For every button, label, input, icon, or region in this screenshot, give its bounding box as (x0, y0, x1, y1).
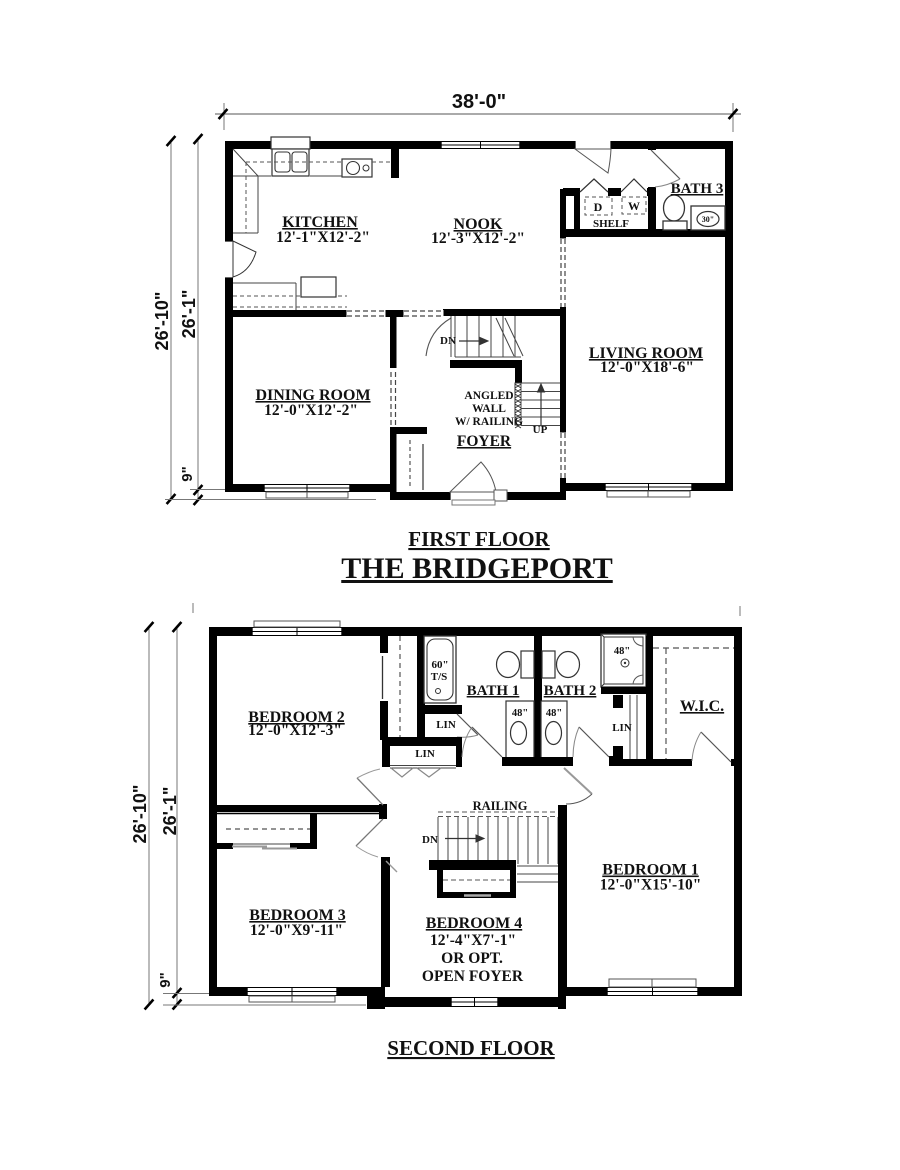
svg-text:60": 60" (431, 659, 448, 671)
svg-text:9": 9" (179, 466, 196, 481)
svg-text:D: D (594, 200, 603, 214)
svg-text:48": 48" (512, 708, 528, 719)
svg-text:T/S: T/S (431, 671, 448, 683)
svg-text:38'-0": 38'-0" (452, 91, 506, 113)
svg-text:30": 30" (702, 215, 714, 224)
svg-text:W.I.C.: W.I.C. (680, 698, 724, 715)
svg-text:12'-1"X12'-2": 12'-1"X12'-2" (276, 229, 370, 246)
svg-text:ANGLED: ANGLED (464, 390, 513, 402)
svg-text:SHELF: SHELF (593, 218, 629, 230)
svg-text:OPEN FOYER: OPEN FOYER (422, 968, 524, 985)
svg-text:OR OPT.: OR OPT. (441, 950, 503, 967)
svg-text:12'-0"X15'-10": 12'-0"X15'-10" (600, 877, 702, 894)
svg-text:26'-10": 26'-10" (130, 785, 150, 844)
svg-text:LIN: LIN (612, 722, 632, 734)
svg-text:12'-0"X9'-11": 12'-0"X9'-11" (250, 922, 343, 939)
svg-text:UP: UP (533, 424, 548, 436)
svg-text:W/ RAILING: W/ RAILING (455, 416, 523, 428)
svg-text:26'-1": 26'-1" (160, 787, 180, 836)
svg-text:BATH 2: BATH 2 (544, 683, 597, 699)
svg-text:26'-10": 26'-10" (152, 292, 172, 351)
svg-text:FIRST FLOOR: FIRST FLOOR (408, 527, 550, 551)
svg-text:9": 9" (157, 972, 174, 987)
svg-text:WALL: WALL (472, 403, 506, 415)
svg-text:FOYER: FOYER (457, 433, 512, 450)
svg-text:48": 48" (614, 646, 630, 657)
svg-text:W: W (628, 199, 640, 213)
svg-text:BEDROOM 4: BEDROOM 4 (426, 915, 522, 932)
svg-text:LIN: LIN (415, 748, 435, 760)
svg-text:BATH 3: BATH 3 (671, 181, 724, 197)
svg-text:LIN: LIN (436, 719, 456, 731)
svg-text:12'-0"X12'-2": 12'-0"X12'-2" (264, 402, 358, 419)
svg-text:26'-1": 26'-1" (179, 290, 199, 339)
svg-text:DN: DN (422, 834, 438, 846)
svg-text:DN: DN (440, 335, 456, 347)
svg-text:12'-0"X12'-3": 12'-0"X12'-3" (248, 722, 342, 739)
svg-text:12'-0"X18'-6": 12'-0"X18'-6" (600, 359, 694, 376)
svg-text:RAILING: RAILING (473, 799, 528, 813)
svg-text:THE BRIDGEPORT: THE BRIDGEPORT (341, 552, 613, 585)
svg-text:12'-3"X12'-2": 12'-3"X12'-2" (431, 230, 525, 247)
svg-text:BATH 1: BATH 1 (467, 683, 520, 699)
svg-text:12'-4"X7'-1": 12'-4"X7'-1" (430, 932, 516, 949)
svg-text:SECOND FLOOR: SECOND FLOOR (387, 1036, 555, 1060)
svg-text:48": 48" (546, 708, 562, 719)
